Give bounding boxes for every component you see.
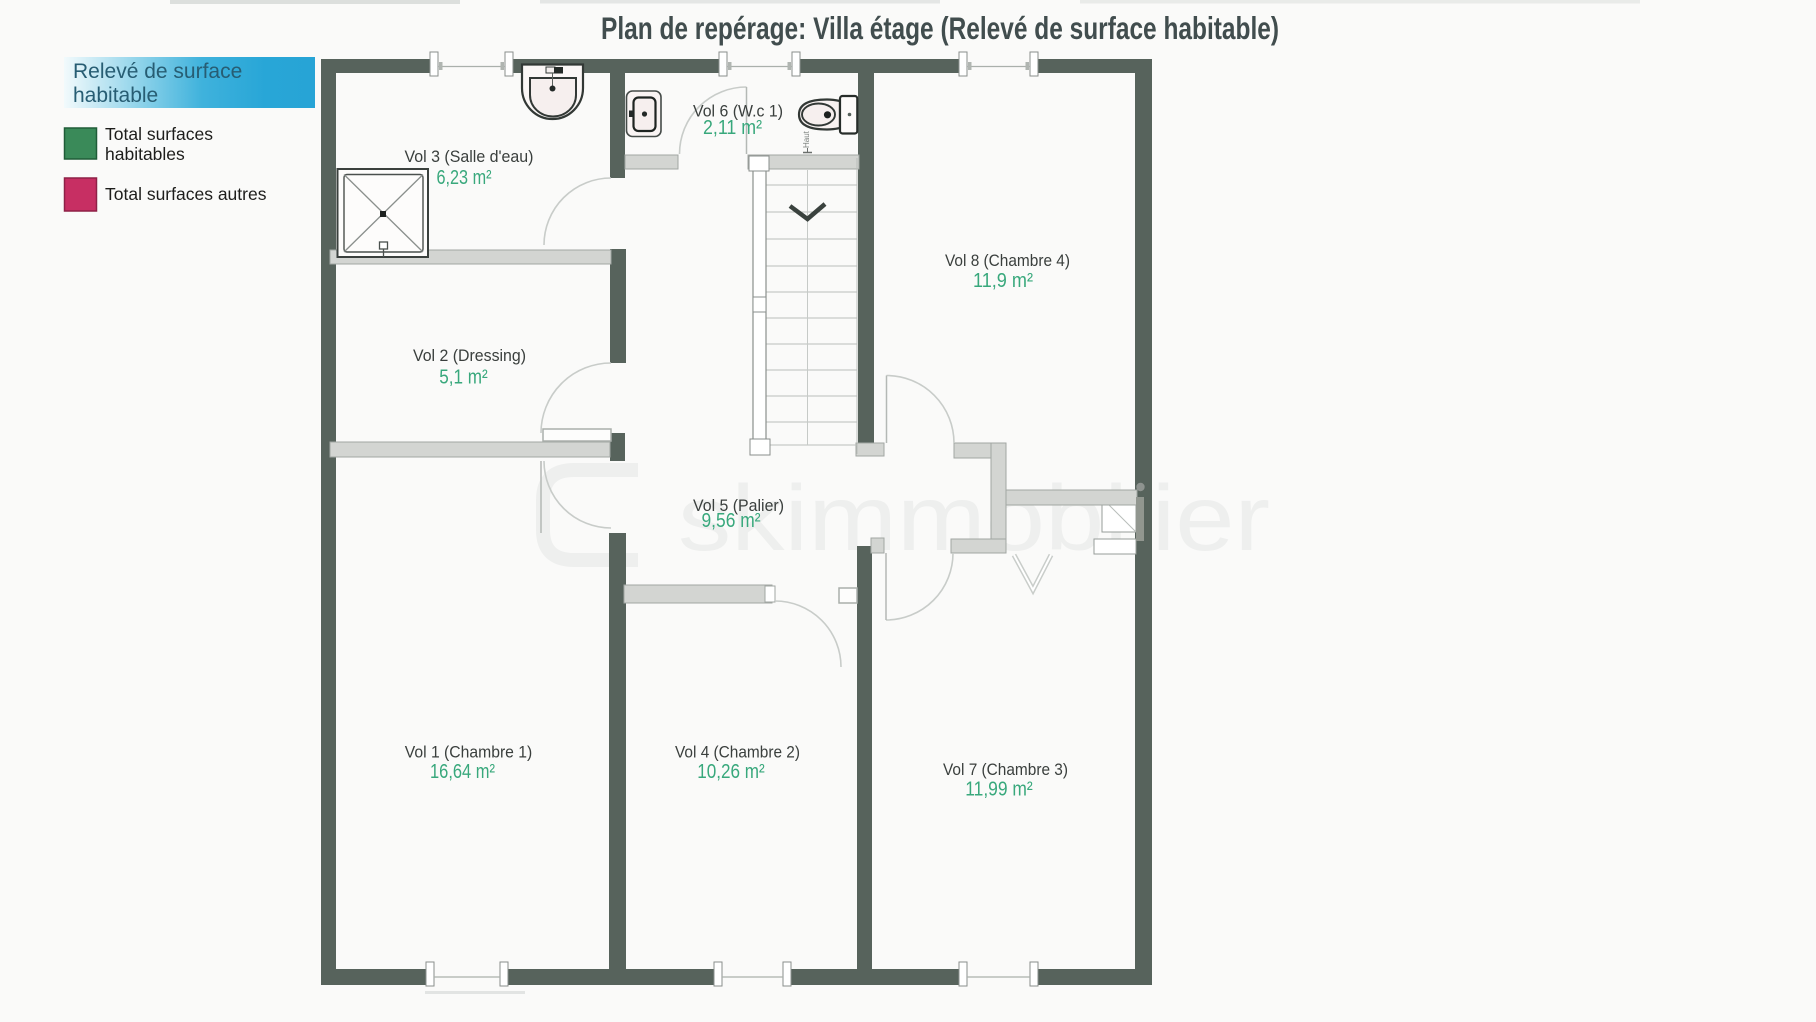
svg-text:habitables: habitables (105, 144, 185, 164)
svg-text:Haut: Haut (802, 130, 811, 148)
svg-text:Vol 4 (Chambre 2): Vol 4 (Chambre 2) (675, 743, 800, 762)
svg-text:Vol 1 (Chambre 1): Vol 1 (Chambre 1) (405, 743, 533, 762)
svg-text:11,99 m²: 11,99 m² (965, 779, 1033, 801)
svg-text:Vol 8 (Chambre 4): Vol 8 (Chambre 4) (945, 251, 1070, 270)
svg-text:Vol 2 (Dressing): Vol 2 (Dressing) (413, 346, 526, 365)
svg-text:Vol 3 (Salle d'eau): Vol 3 (Salle d'eau) (405, 147, 534, 166)
svg-text:Relevé de surface: Relevé de surface (73, 60, 242, 83)
svg-text:10,26 m²: 10,26 m² (697, 761, 765, 783)
svg-text:Total surfaces autres: Total surfaces autres (105, 184, 267, 204)
svg-text:Total surfaces: Total surfaces (105, 124, 213, 144)
svg-text:2,11 m²: 2,11 m² (703, 117, 762, 139)
svg-text:habitable: habitable (73, 84, 158, 107)
svg-text:Plan de repérage: Villa étage: Plan de repérage: Villa étage (Relevé de… (601, 10, 1279, 46)
svg-text:16,64 m²: 16,64 m² (430, 761, 495, 783)
svg-text:Vol 7 (Chambre 3): Vol 7 (Chambre 3) (943, 760, 1068, 779)
svg-text:5,1 m²: 5,1 m² (439, 367, 488, 389)
svg-text:6,23 m²: 6,23 m² (437, 167, 492, 189)
svg-text:9,56 m²: 9,56 m² (702, 510, 761, 532)
svg-text:11,9 m²: 11,9 m² (973, 270, 1033, 292)
svg-text:skimmobilier: skimmobilier (678, 466, 1270, 570)
